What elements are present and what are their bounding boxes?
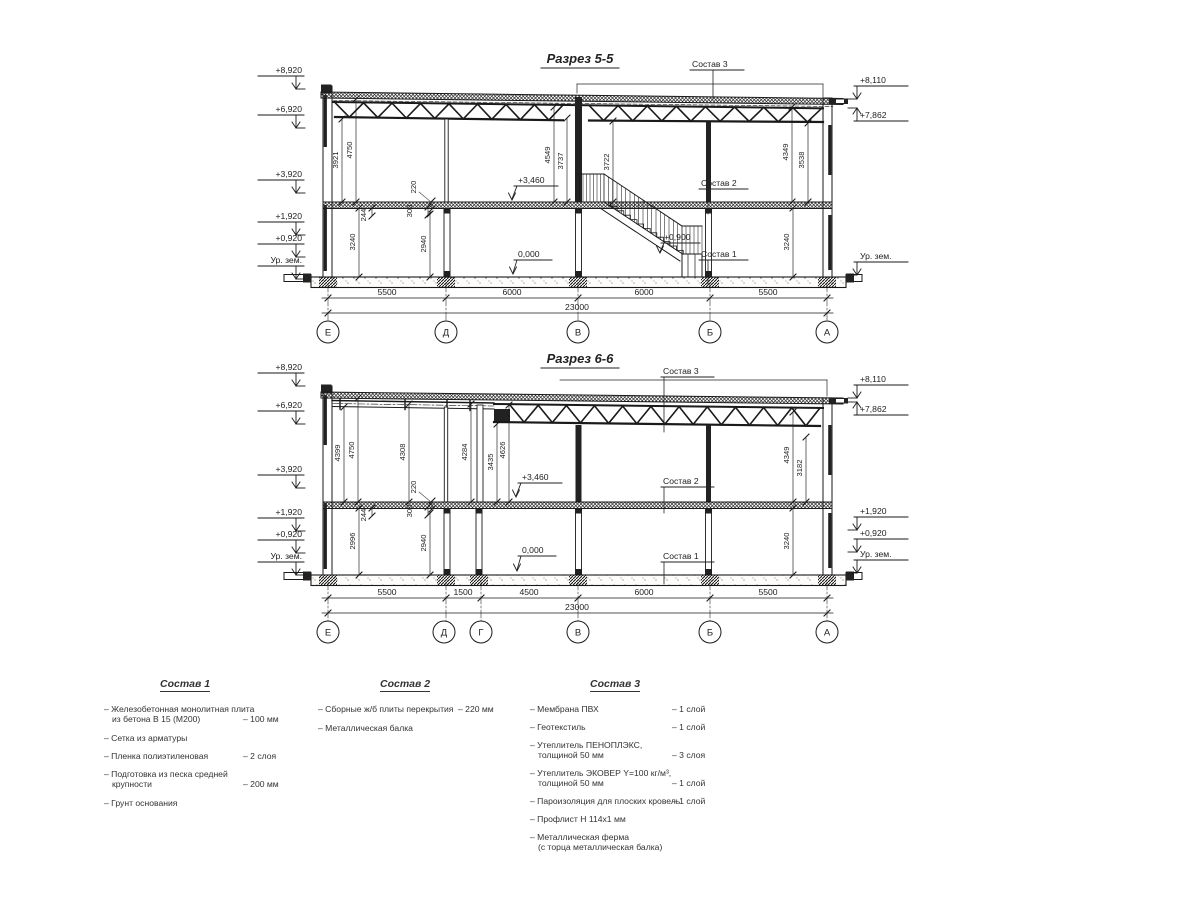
- svg-text:+0,920: +0,920: [275, 233, 302, 243]
- legend-item: – Грунт основания: [104, 798, 177, 808]
- dim-label: 4549: [543, 147, 552, 164]
- elevation-marks-left: +8,920 +6,920 +3,920 +1,920 +0,920 Ур. з…: [258, 362, 305, 575]
- dim-label: 4308: [398, 444, 407, 461]
- legend-item: – Утеплитель ПЕНОПЛЭКС,: [530, 740, 642, 750]
- svg-text:Состав 1: Состав 1: [701, 249, 737, 259]
- dim-label: 3737: [556, 153, 565, 170]
- svg-text:Г: Г: [478, 628, 483, 639]
- legend-title: Состав 1: [160, 678, 210, 692]
- svg-text:А: А: [824, 628, 831, 639]
- svg-text:+0,920: +0,920: [275, 529, 302, 539]
- dim-label: 3240: [348, 234, 357, 251]
- dim-label: 4500: [519, 587, 538, 597]
- svg-text:+7,862: +7,862: [860, 404, 887, 414]
- legend-item: – Сетка из арматуры: [104, 733, 187, 743]
- dim-label: 220: [409, 481, 418, 494]
- svg-text:+6,920: +6,920: [275, 104, 302, 114]
- svg-text:+7,862: +7,862: [860, 110, 887, 120]
- dim-label: 244: [359, 509, 368, 522]
- dim-label: 3240: [782, 533, 791, 550]
- drawing-canvas: Разрез 5-5: [0, 0, 1200, 900]
- svg-text:+1,920: +1,920: [275, 507, 302, 517]
- legend-item: – Металлическая балка: [318, 723, 413, 733]
- legend-item: – Мембрана ПВХ: [530, 704, 599, 714]
- legend-item: – Подготовка из песка средней: [104, 769, 228, 779]
- legend-item: (с торца металлическая балка): [538, 842, 662, 852]
- dim-label: 3435: [486, 454, 495, 471]
- dim-label: 6000: [502, 287, 521, 297]
- legend-value: – 2 слоя: [243, 751, 276, 761]
- svg-text:Состав 3: Состав 3: [692, 59, 728, 69]
- dim-label: 5500: [377, 287, 396, 297]
- axis-bubbles: Е Д Г В Б А: [317, 621, 838, 643]
- svg-text:В: В: [575, 328, 581, 339]
- svg-text:+3,460: +3,460: [522, 472, 549, 482]
- svg-text:Б: Б: [707, 628, 713, 639]
- legend-value: – 3 слоя: [672, 750, 705, 760]
- dim-label: 6000: [634, 587, 653, 597]
- dim-label: 3538: [797, 152, 806, 169]
- svg-text:Б: Б: [707, 328, 713, 339]
- legend-item: – Профлист Н 114х1 мм: [530, 814, 626, 824]
- svg-text:Е: Е: [325, 328, 331, 339]
- dim-label: 1500: [453, 587, 472, 597]
- section-6-6: Разрез 6-6: [258, 351, 908, 643]
- elevation-marks-left: +8,920 +6,920 +3,920 +1,920 +0,920 Ур. з…: [258, 65, 305, 279]
- svg-text:Д: Д: [441, 628, 448, 639]
- drawing-sheet: Разрез 5-5: [0, 0, 1200, 900]
- svg-text:Состав 1: Состав 1: [663, 551, 699, 561]
- dim-label: 4750: [345, 142, 354, 159]
- legend-item: – Металлическая ферма: [530, 832, 629, 842]
- svg-text:+1,920: +1,920: [275, 211, 302, 221]
- legend-item: – Геотекстиль: [530, 722, 586, 732]
- dim-label: 3722: [602, 154, 611, 171]
- elevation-marks-right: +8,110 +7,862 +1,920 +0,920 Ур. зем.: [848, 374, 908, 573]
- staircase: [576, 174, 702, 277]
- svg-text:А: А: [824, 328, 831, 339]
- lower-columns: [444, 509, 713, 576]
- svg-text:0,000: 0,000: [518, 249, 540, 259]
- svg-text:Е: Е: [325, 628, 331, 639]
- svg-text:Состав 2: Состав 2: [701, 178, 737, 188]
- legend-item: – Сборные ж/б плиты перекрытия: [318, 704, 453, 714]
- svg-text:+6,920: +6,920: [275, 400, 302, 410]
- legend-title: Состав 2: [380, 678, 430, 692]
- legend-item: – Железобетонная монолитная плита: [104, 704, 254, 714]
- svg-text:Ур. зем.: Ур. зем.: [270, 255, 302, 265]
- dim-label: 4284: [460, 444, 469, 461]
- dim-label: 4399: [333, 445, 342, 462]
- svg-text:Состав 3: Состав 3: [663, 366, 699, 376]
- dim-label: 4349: [781, 144, 790, 161]
- svg-text:Ур. зем.: Ур. зем.: [860, 549, 892, 559]
- legend-value: – 1 слой: [672, 722, 705, 732]
- legend-value: – 1 слой: [672, 778, 705, 788]
- dim-label: 4349: [782, 447, 791, 464]
- svg-text:0,000: 0,000: [522, 545, 544, 555]
- svg-text:+8,920: +8,920: [275, 65, 302, 75]
- dim-label: 3240: [782, 234, 791, 251]
- elevation-marks-right: +8,110 +7,862 Ур. зем.: [848, 75, 908, 275]
- legend-item: – Пленка полиэтиленовая: [104, 751, 208, 761]
- svg-text:+8,110: +8,110: [860, 374, 886, 384]
- level-mark: +3,460 0,000: [513, 472, 563, 571]
- dim-label: 4626: [498, 442, 507, 459]
- svg-text:В: В: [575, 628, 581, 639]
- legend-item: толщиной 50 мм: [538, 750, 604, 760]
- dim-label: 23000: [565, 302, 589, 312]
- dim-label: 6000: [634, 287, 653, 297]
- axis-bubbles: Е Д В Б А: [317, 321, 838, 343]
- legend-value: – 200 мм: [243, 779, 279, 789]
- dim-label: 2996: [348, 533, 357, 550]
- section-title: Разрез 5-5: [547, 51, 615, 66]
- dim-label: 5500: [758, 287, 777, 297]
- dim-label: 5500: [758, 587, 777, 597]
- svg-text:Ур. зем.: Ур. зем.: [860, 251, 892, 261]
- svg-text:+8,920: +8,920: [275, 362, 302, 372]
- svg-text:+0,900: +0,900: [664, 232, 691, 242]
- legend-item: толщиной 50 мм: [538, 778, 604, 788]
- svg-text:+3,920: +3,920: [275, 169, 302, 179]
- dim-label: 300: [405, 205, 414, 218]
- legend-item: – Пароизоляция для плоских кровель: [530, 796, 680, 806]
- dim-label: 3182: [795, 460, 804, 477]
- svg-text:Ур. зем.: Ур. зем.: [270, 551, 302, 561]
- dim-label: 300: [405, 505, 414, 518]
- svg-text:+3,460: +3,460: [518, 175, 545, 185]
- legend-value: – 100 мм: [243, 714, 279, 724]
- svg-text:+3,920: +3,920: [275, 464, 302, 474]
- legend-item: из бетона В 15 (М200): [112, 714, 200, 724]
- section-title: Разрез 6-6: [547, 351, 615, 366]
- dim-label: 4750: [347, 442, 356, 459]
- dim-label: 220: [409, 181, 418, 194]
- svg-text:+8,110: +8,110: [860, 75, 886, 85]
- svg-text:+0,920: +0,920: [860, 528, 887, 538]
- legend-value: – 1 слой: [672, 704, 705, 714]
- dim-label: 5500: [377, 587, 396, 597]
- legend-value: – 1 слой: [672, 796, 705, 806]
- dim-label: 23000: [565, 602, 589, 612]
- dim-label: 2940: [419, 535, 428, 552]
- section-5-5: Разрез 5-5: [258, 51, 908, 343]
- svg-text:Состав 2: Состав 2: [663, 476, 699, 486]
- dim-label: 3921: [331, 152, 340, 169]
- svg-text:Д: Д: [443, 328, 450, 339]
- dim-label: 244: [359, 209, 368, 222]
- legend-item: – Утеплитель ЭКОВЕР Y=100 кг/м³,: [530, 768, 671, 778]
- dim-label: 2940: [419, 236, 428, 253]
- legend-title: Состав 3: [590, 678, 640, 692]
- svg-text:+1,920: +1,920: [860, 506, 887, 516]
- legend-item: крупности: [112, 779, 152, 789]
- legend-value: – 220 мм: [458, 704, 494, 714]
